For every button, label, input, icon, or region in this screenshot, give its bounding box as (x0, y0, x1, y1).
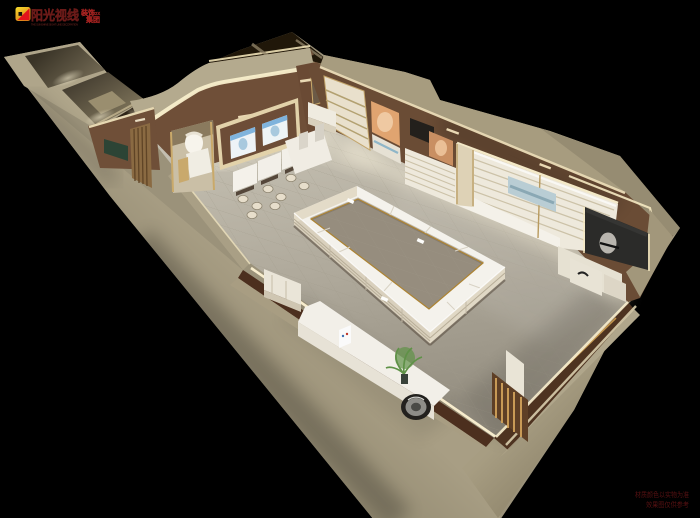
svg-text:阳光视线: 阳光视线 (31, 8, 79, 23)
svg-text:效果图仅供参考: 效果图仅供参考 (646, 500, 689, 509)
svg-text:THE SUNSHINE SIGHT LINE DECORA: THE SUNSHINE SIGHT LINE DECORATION (31, 23, 78, 27)
svg-text:集团: 集团 (85, 15, 100, 24)
svg-text:材质颜色以实物为准: 材质颜色以实物为准 (635, 490, 689, 499)
